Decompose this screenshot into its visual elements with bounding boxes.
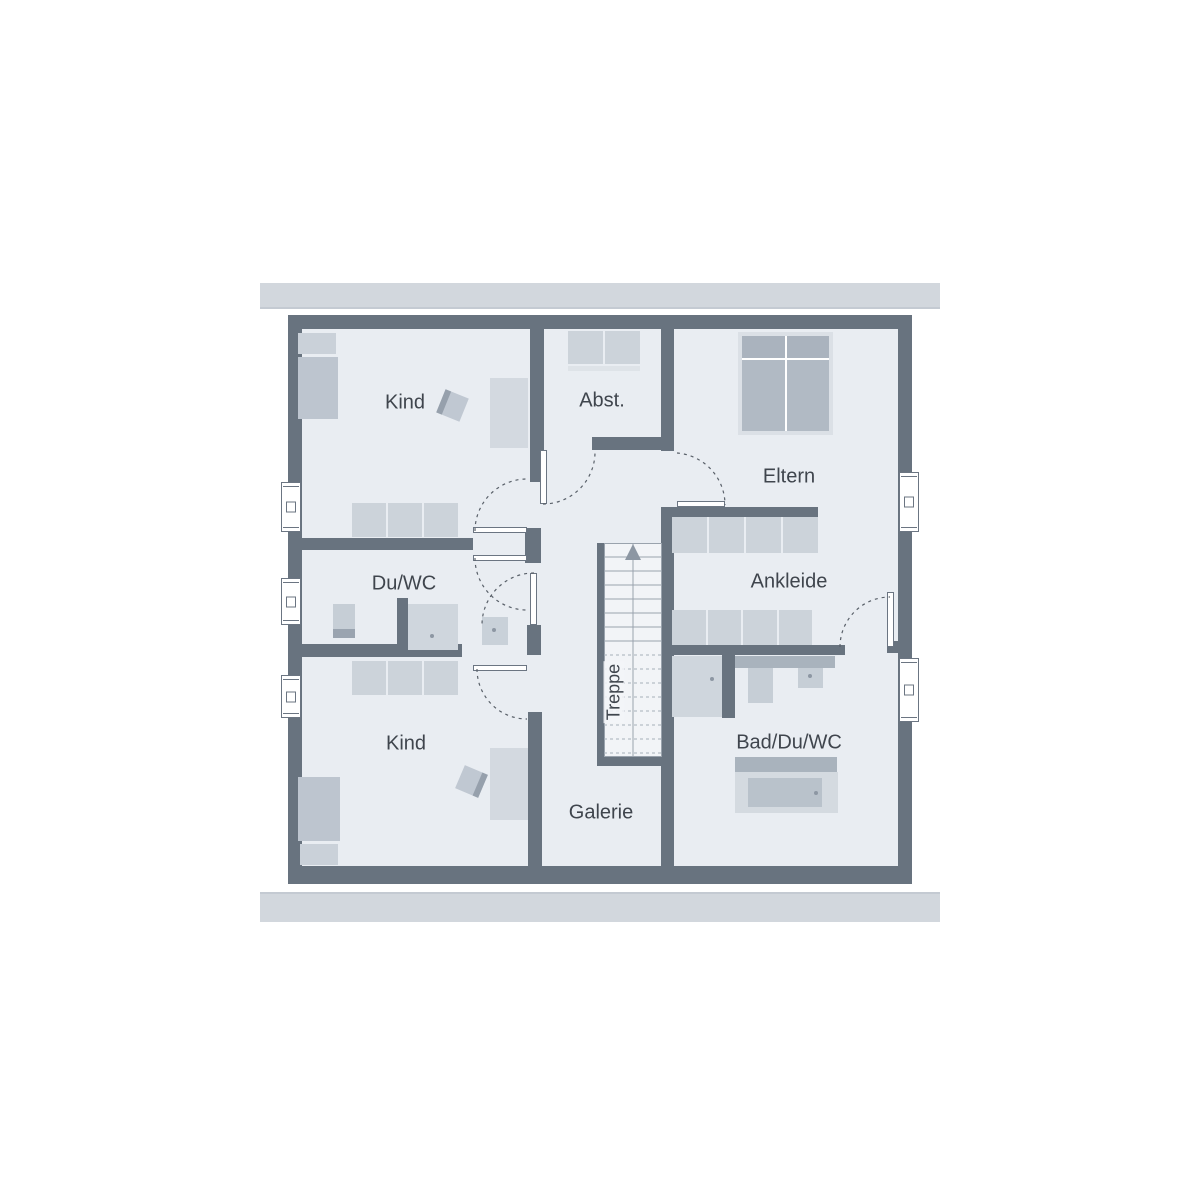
desk-kind-bottom <box>490 748 528 820</box>
window-left-2 <box>281 578 301 625</box>
bed-pillow-kind-bottom <box>300 844 338 865</box>
door-leaf-kind-bottom <box>473 665 527 671</box>
window-right-1 <box>899 472 919 532</box>
bathtub-inner <box>748 778 822 807</box>
door-leaf-bad <box>887 592 894 647</box>
wall-duwc-right <box>527 625 541 655</box>
washbasin-duwc <box>482 617 508 645</box>
window-left-3 <box>281 675 301 718</box>
cabinet-abst-front <box>568 366 640 371</box>
window-right-2 <box>899 658 919 722</box>
wall-bad-stub <box>722 645 735 718</box>
wall-ankleide-top <box>661 507 818 517</box>
wc-duwc <box>333 604 355 638</box>
bed-mattress-kind-bottom <box>298 777 340 841</box>
bathtub-shelf <box>735 757 837 772</box>
room-label-bad-duwc: Bad/Du/WC <box>736 732 842 755</box>
roof-edge-top <box>260 283 940 309</box>
room-label-kind-top: Kind <box>385 392 425 415</box>
cabinet-abst <box>568 331 640 364</box>
roof-edge-bottom <box>260 892 940 922</box>
door-leaf-duwc-2 <box>530 573 537 625</box>
wall-stairs-bottom <box>597 756 663 766</box>
window-left-1 <box>281 482 301 532</box>
bed-pillow-kind-top <box>298 333 336 354</box>
wall-abst-bottom <box>592 437 673 450</box>
wall-door-post <box>525 528 541 563</box>
wall-abst-eltern <box>661 329 674 451</box>
door-leaf-kind-top <box>473 527 527 533</box>
door-leaf-abst <box>540 450 547 504</box>
wall-stairs-left <box>597 543 604 766</box>
wall-ankleide-bottom <box>661 645 845 655</box>
bed-eltern <box>738 332 833 435</box>
room-label-ankleide: Ankleide <box>751 571 828 594</box>
shower-bad <box>672 656 722 717</box>
desk-kind-top <box>490 378 528 448</box>
washbasin-bad <box>798 668 823 688</box>
wardrobe-kind-top <box>352 503 458 537</box>
staircase <box>604 543 662 757</box>
room-label-kind-bottom: Kind <box>386 733 426 756</box>
wall-kind-galerie <box>528 712 542 866</box>
wardrobe-kind-bottom <box>352 661 458 695</box>
shower-duwc <box>408 604 458 650</box>
wall-duwc-stub <box>397 598 408 648</box>
floor-plan-canvas: Kind Abst. Eltern Du/WC Ankleide Kind Ga… <box>0 0 1200 1200</box>
vanity-counter-bad <box>735 656 835 668</box>
bed-mattress-kind-top <box>298 357 338 419</box>
room-label-galerie: Galerie <box>569 802 633 825</box>
wardrobe-ankleide-top <box>672 517 818 553</box>
door-leaf-duwc <box>473 555 527 561</box>
wardrobe-ankleide-bottom <box>672 610 812 645</box>
wc-bad <box>748 668 773 703</box>
room-label-eltern: Eltern <box>763 466 815 489</box>
room-label-duwc: Du/WC <box>372 573 436 596</box>
wall-duwc-top <box>288 538 473 550</box>
room-label-treppe: Treppe <box>604 661 625 723</box>
door-leaf-eltern <box>677 501 725 507</box>
room-label-abst: Abst. <box>579 390 625 413</box>
